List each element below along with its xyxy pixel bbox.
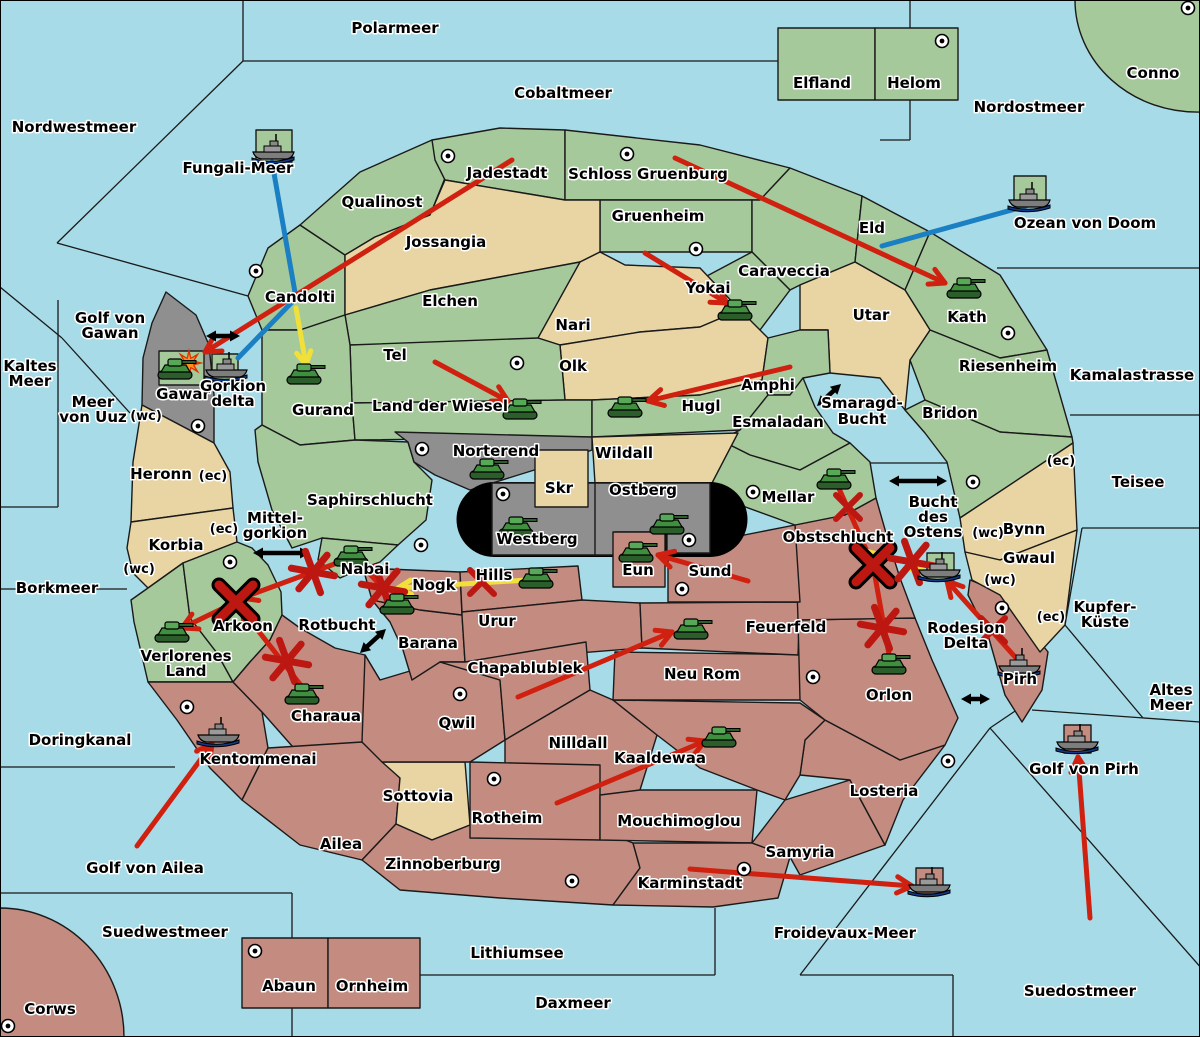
territory-label: Wildall [595,444,653,462]
sea-label: Borkmeer [16,579,99,597]
territory-label: Nogk [412,576,457,594]
city-marker-icon [807,671,820,684]
sea-label: Fungali-Meer [183,159,294,177]
city-marker-icon [497,488,510,501]
supply-tag-label: (wc) [972,526,1004,541]
territory-label: Olk [559,357,588,375]
territory-label: Corws [24,1000,76,1018]
territory-label: Charaua [291,707,361,725]
sea-label: Polarmeer [351,19,439,37]
sea-label: Ostens [904,523,963,541]
city-marker-icon [676,583,689,596]
sea-label: Teisee [1112,473,1165,491]
supply-tag-label: (wc) [984,573,1016,588]
city-marker-icon [181,701,194,714]
territory-label: Chapablublek [467,659,583,677]
city-marker-icon [942,755,955,768]
territory-label: Tel [383,346,407,364]
territory-label: Delta [943,634,988,652]
territory-label: Bridon [922,404,978,422]
territory-label: Karminstadt [638,874,743,892]
sea-label: Nordostmeer [974,98,1085,116]
city-marker-icon [2,1020,15,1033]
territory-label: Abaun [262,977,316,995]
sea-label: Gawan [81,324,138,342]
territory-label: Gwaul [1003,549,1055,567]
sea-label: Bucht [838,410,887,428]
territory-label: Arkoon [213,617,273,635]
sea-label: Suedostmeer [1024,982,1137,1000]
city-marker-icon [224,556,237,569]
territory-label: Nilldall [548,734,607,752]
territory-label: Eld [859,219,885,237]
territory-label: Elfland [793,74,851,92]
territory-label: delta [211,392,254,410]
territory-label: Zinnoberburg [385,855,501,873]
city-marker-icon [690,243,703,256]
sea-label: Nordwestmeer [12,118,137,136]
territory-label: Korbia [148,536,203,554]
sea-label: Golf von Ailea [86,859,204,877]
territory-label: Westberg [496,530,577,548]
territory-label: Gurand [292,401,354,419]
territory-label: Candolti [265,288,335,306]
territory-label: Losteria [850,782,919,800]
territory-label: Feuerfeld [746,618,827,636]
region-ornheim[interactable] [328,938,420,1008]
territory-label: Conno [1127,64,1180,82]
territory-label: Jadestadt [466,164,548,182]
city-marker-icon [566,875,579,888]
city-marker-icon [621,148,634,161]
territory-label: Sottovia [383,787,454,805]
territory-label: Land der Wiesel [372,397,508,415]
territory-label: Barana [398,634,458,652]
sea-label: Daxmeer [535,994,611,1012]
territory-label: Jossangia [405,233,487,251]
city-marker-icon [1182,2,1195,15]
territory-label: Rotheim [472,809,543,827]
territory-label: Schloss Gruenburg [568,165,728,183]
territory-label: Heronn [130,465,192,483]
territory-label: Ailea [320,835,362,853]
territory-label: Hills [476,566,513,584]
city-marker-icon [249,945,262,958]
attack-arrow-head [655,630,672,632]
territory-label: Mellar [762,488,816,506]
territory-label: Gruenheim [612,207,705,225]
city-marker-icon [416,443,429,456]
sea-label: gorkion [243,524,308,542]
city-marker-icon [488,773,501,786]
sea-label: Ozean von Doom [1014,214,1156,232]
territory-label: Ornheim [336,977,408,995]
territory-label: Skr [545,479,574,497]
attack-arrow-head [182,628,199,629]
territory-label: Ostberg [609,481,677,499]
sea-label: von Uuz [59,408,127,426]
supply-tag-label: (ec) [199,469,227,484]
supply-tag-label: (ec) [210,522,238,537]
territory-label: Samyria [766,843,835,861]
supply-tag-label: (ec) [1037,610,1065,625]
city-marker-icon [415,539,428,552]
sea-label: Küste [1081,613,1129,631]
sea-label: Froidevaux-Meer [774,924,917,942]
sea-label: Kamalastrasse [1070,366,1194,384]
supply-tag-label: (wc) [123,562,155,577]
territory-label: Norterend [453,442,540,460]
sea-label: Cobaltmeer [514,84,612,102]
sea-label: Lithiumsee [470,944,563,962]
attack-arrow-head [205,351,222,352]
territory-label: Amphi [741,376,795,394]
sea-label: Suedwestmeer [102,923,228,941]
map-canvas: PolarmeerCobaltmeerNordostmeerNordwestme… [0,0,1200,1037]
territory-label: Riesenheim [959,357,1057,375]
sea-label: Golf von Pirh [1029,760,1139,778]
territory-label: Urur [478,612,516,630]
sea-label: Doringkanal [29,731,132,749]
territory-label: Nari [555,316,590,334]
city-marker-icon [967,476,980,489]
territory-label: Nabai [341,560,390,578]
city-marker-icon [683,534,696,547]
territory-label: Land [165,662,206,680]
territory-label: Kath [947,308,987,326]
territory-label: Bynn [1003,520,1046,538]
city-marker-icon [250,265,263,278]
city-marker-icon [454,688,467,701]
territory-label: Esmaladan [732,413,824,431]
game-map: PolarmeerCobaltmeerNordostmeerNordwestme… [0,0,1200,1037]
city-marker-icon [996,602,1009,615]
sea-label: Rotbucht [298,616,375,634]
territory-label: Kentommenai [199,750,316,768]
city-marker-icon [442,150,455,163]
supply-tag-label: (ec) [1047,454,1075,469]
territory-label: Yokai [684,279,730,297]
city-marker-icon [936,35,949,48]
territory-label: Obstschlucht [783,528,894,546]
territory-label: Orlon [866,686,912,704]
territory-label: Saphirschlucht [307,491,433,509]
city-marker-icon [1002,327,1015,340]
territory-label: Utar [853,306,890,324]
territory-label: Qwil [439,714,476,732]
territory-label: Mouchimoglou [617,812,740,830]
sea-label: Meer [1150,696,1193,714]
territory-label: Neu Rom [664,665,740,683]
city-marker-icon [511,357,524,370]
territory-label: Hugl [681,397,720,415]
territory-label: Eun [622,561,654,579]
territory-label: Caraveccia [738,262,830,280]
supply-tag-label: (wc) [130,409,162,424]
city-marker-icon [747,486,760,499]
city-marker-icon [192,420,205,433]
territory-label: Qualinost [342,193,423,211]
sea-label: Meer [9,372,52,390]
territory-label: Kaaldewaa [614,749,706,767]
territory-label: Sund [689,562,732,580]
territory-label: Helom [887,74,941,92]
territory-label: Elchen [422,292,478,310]
territory-label: Pirh [1003,670,1037,688]
